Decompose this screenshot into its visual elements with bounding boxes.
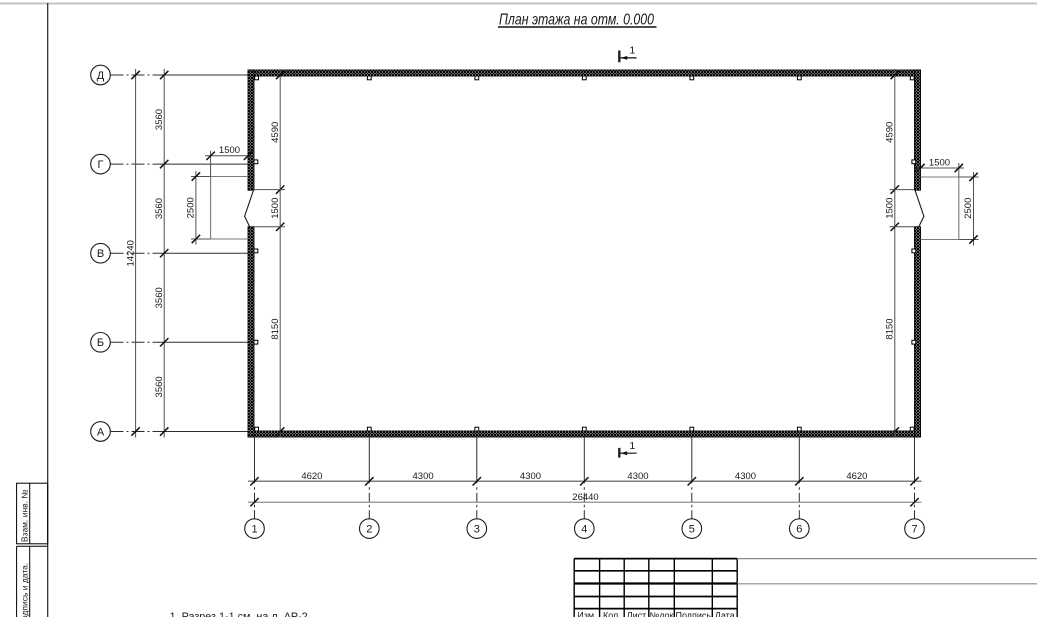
- svg-text:Д: Д: [97, 70, 105, 82]
- svg-text:1. Разрез 1-1 см. на л. АР-2: 1. Разрез 1-1 см. на л. АР-2: [170, 611, 308, 617]
- svg-text:1500: 1500: [929, 157, 950, 168]
- svg-text:Взам. инв. №: Взам. инв. №: [19, 489, 29, 542]
- svg-text:Г: Г: [98, 159, 104, 171]
- svg-text:А: А: [97, 426, 105, 438]
- svg-text:1: 1: [629, 440, 635, 452]
- svg-text:5: 5: [689, 524, 695, 536]
- svg-text:3: 3: [474, 524, 480, 536]
- svg-text:14240: 14240: [125, 240, 136, 266]
- svg-text:4590: 4590: [885, 122, 896, 143]
- svg-text:4: 4: [581, 524, 587, 536]
- svg-text:Подпись и дата.: Подпись и дата.: [19, 563, 29, 617]
- svg-text:1500: 1500: [270, 198, 281, 219]
- svg-text:4620: 4620: [846, 471, 867, 482]
- svg-text:В: В: [97, 248, 104, 260]
- svg-text:4590: 4590: [270, 122, 281, 143]
- svg-text:6: 6: [796, 524, 802, 536]
- svg-text:План этажа на отм. 0.000: План этажа на отм. 0.000: [499, 12, 654, 29]
- svg-text:2: 2: [366, 524, 372, 536]
- svg-text:3560: 3560: [154, 109, 165, 130]
- svg-text:7: 7: [911, 524, 917, 536]
- svg-text:4300: 4300: [520, 471, 541, 482]
- svg-text:26440: 26440: [572, 492, 598, 503]
- svg-text:2500: 2500: [186, 197, 197, 218]
- svg-text:4300: 4300: [735, 471, 756, 482]
- svg-text:4300: 4300: [627, 471, 648, 482]
- svg-text:2500: 2500: [963, 198, 974, 219]
- svg-text:Лист: Лист: [627, 611, 647, 617]
- svg-text:Подпись: Подпись: [675, 611, 711, 617]
- svg-text:Дата: Дата: [715, 611, 735, 617]
- svg-text:3560: 3560: [154, 198, 165, 219]
- svg-text:4620: 4620: [301, 471, 322, 482]
- svg-text:8150: 8150: [270, 319, 281, 340]
- svg-text:Кол.: Кол.: [603, 611, 621, 617]
- svg-text:4300: 4300: [413, 471, 434, 482]
- svg-text:3560: 3560: [154, 287, 165, 308]
- svg-text:1: 1: [251, 524, 257, 536]
- svg-text:3560: 3560: [154, 376, 165, 397]
- svg-text:1500: 1500: [885, 198, 896, 219]
- svg-text:Изм.: Изм.: [577, 611, 596, 617]
- svg-text:8150: 8150: [885, 319, 896, 340]
- svg-text:Б: Б: [97, 337, 104, 349]
- svg-text:1500: 1500: [219, 145, 240, 156]
- svg-text:1: 1: [629, 45, 635, 57]
- svg-text:№док: №док: [650, 611, 674, 617]
